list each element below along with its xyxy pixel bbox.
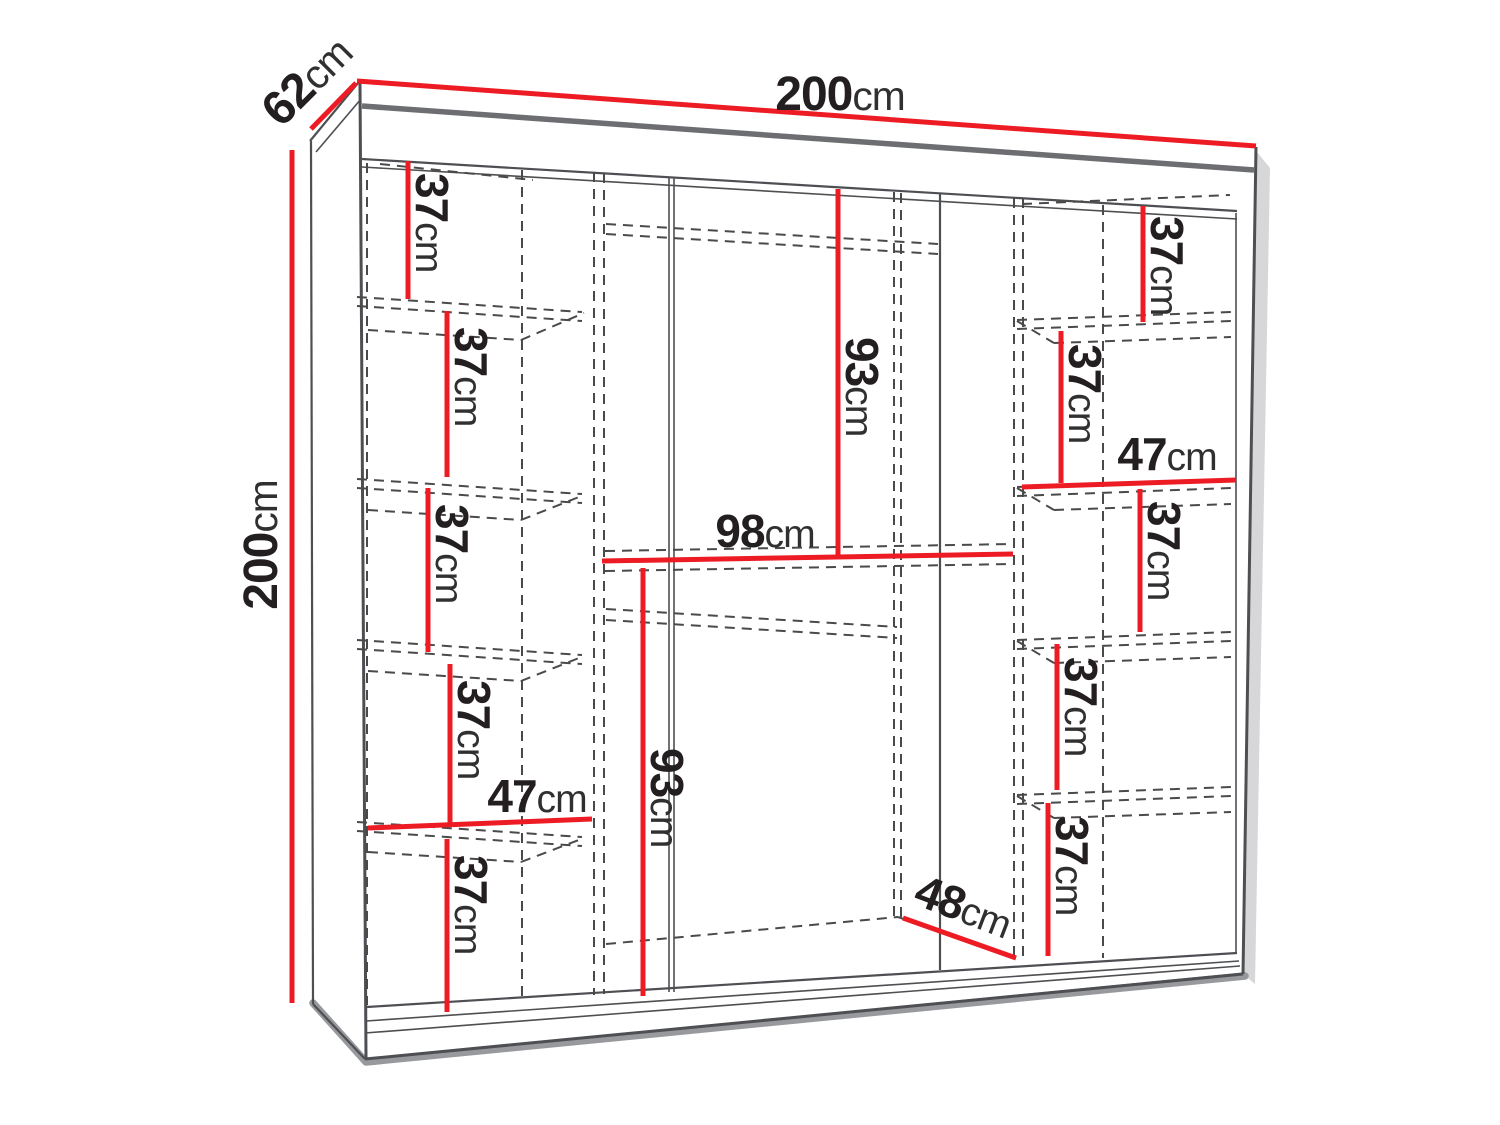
label-mid-depth: 48cm — [908, 864, 1019, 948]
label-left-shelf-5: 37cm — [445, 855, 497, 954]
label-right-width: 47cm — [1117, 428, 1216, 480]
label-overall-height: 200cm — [235, 480, 288, 609]
label-overall-depth: 62cm — [252, 26, 363, 137]
side-back-edge — [311, 141, 313, 1004]
upper-hanging-rail-b — [606, 234, 938, 254]
label-right-shelf-2: 37cm — [1059, 344, 1111, 443]
label-right-shelf-3: 37cm — [1138, 501, 1190, 600]
right-shelf-4-back — [1017, 787, 1231, 795]
mid-shelf-edge-b — [605, 564, 1013, 571]
label-left-shelf-1: 37cm — [406, 173, 458, 272]
floor-back-edge — [606, 917, 898, 944]
right-shelf-1-thickness — [1017, 321, 1231, 329]
label-right-shelf-4: 37cm — [1055, 657, 1107, 756]
label-overall-width: 200cm — [775, 68, 904, 121]
dim-line-right-width — [1022, 480, 1236, 487]
label-left-width: 47cm — [487, 770, 586, 822]
front-left-edge — [360, 83, 366, 1058]
front-bottom-edge — [365, 974, 1243, 1059]
label-mid-upper-height: 93cm — [836, 337, 888, 436]
left-shelf-3-back — [357, 640, 582, 655]
label-right-shelf-5: 37cm — [1046, 816, 1098, 915]
left-shelf-3-thickness — [357, 649, 582, 664]
label-left-shelf-3: 37cm — [426, 504, 478, 603]
right-shelf-3-back — [1017, 632, 1231, 640]
left-shelf-2-thickness — [357, 488, 582, 503]
upper-hanging-rail-a — [606, 224, 938, 244]
diagram-svg: 200cm62cm200cm37cm37cm37cm37cm47cm37cm93… — [0, 0, 1500, 1125]
label-left-shelf-2: 37cm — [445, 327, 497, 426]
side-bottom-edge — [313, 1004, 365, 1059]
left-shelf-2-back — [357, 479, 582, 494]
label-right-shelf-1: 37cm — [1141, 216, 1193, 315]
label-left-shelf-4: 37cm — [448, 680, 500, 779]
interior-top-line — [362, 159, 1237, 211]
right-shelf-1-back — [1017, 312, 1231, 320]
interior-top-line-2 — [362, 167, 1237, 219]
left-shelf-4-thickness — [357, 831, 582, 846]
label-mid-lower-height: 93cm — [641, 748, 693, 847]
lower-hanging-rail-b — [606, 620, 897, 638]
left-shelf-1-back — [357, 297, 582, 312]
middle-compartment — [605, 224, 1016, 958]
lower-hanging-rail-a — [606, 609, 897, 627]
right-shelf-3-thickness — [1017, 641, 1231, 649]
right-shelf-2-thickness — [1017, 488, 1231, 496]
right-compartment-shelves — [1017, 312, 1231, 818]
right-shelf-1-front — [1054, 337, 1231, 343]
wardrobe-dimension-diagram: 200cm62cm200cm37cm37cm37cm37cm47cm37cm93… — [0, 0, 1500, 1125]
label-mid-width: 98cm — [715, 505, 814, 557]
left-shelf-1-thickness — [357, 306, 582, 321]
right-shelf-4-thickness — [1017, 796, 1231, 804]
